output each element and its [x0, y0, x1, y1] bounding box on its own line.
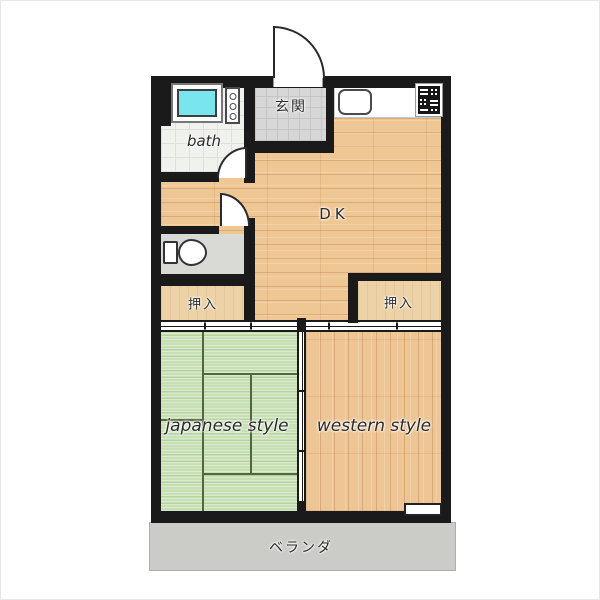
wall-bath-bottom — [161, 172, 219, 182]
bath-label: bath — [187, 132, 221, 150]
tatami-mat-line — [202, 473, 298, 475]
track-tick — [204, 323, 206, 330]
wall-right — [441, 76, 451, 523]
fusuma-track — [306, 320, 441, 332]
wall-closet-right-top — [348, 273, 441, 281]
wall-genkan-bottom — [249, 141, 334, 153]
veranda-label: ベランダ — [269, 537, 333, 557]
bathtub — [171, 83, 223, 123]
wall-pier-bottom — [297, 501, 306, 513]
door-threshold — [273, 77, 323, 87]
floor-plan: 玄関 bath DK 押入 押入 japanese style western … — [0, 0, 600, 600]
wall-genkan-right — [326, 88, 334, 143]
wall-closet-left-side — [244, 286, 255, 321]
track-tick — [298, 390, 305, 392]
partition-track — [297, 332, 306, 501]
track-line — [306, 326, 441, 327]
dk-label: DK — [319, 205, 348, 223]
track-tick — [298, 450, 305, 452]
closet-left-label: 押入 — [188, 294, 218, 313]
track-tick — [328, 323, 330, 330]
panel-knob — [229, 103, 236, 110]
stove-icon — [415, 83, 443, 117]
toilet-tank — [163, 241, 178, 264]
track-line — [159, 326, 297, 327]
western-room-label: western style — [317, 416, 431, 436]
genkan-label: 玄関 — [275, 96, 307, 116]
japanese-room-label: japanese style — [165, 416, 288, 436]
track-line — [302, 332, 303, 501]
stove-burners — [418, 86, 440, 114]
track-tick — [250, 323, 252, 330]
bath-control-panel — [225, 87, 240, 124]
wall-left — [151, 76, 161, 523]
wall-pier-top — [297, 318, 306, 332]
panel-knob — [229, 113, 236, 120]
panel-knob — [229, 93, 236, 100]
track-tick — [396, 323, 398, 330]
fusuma-track — [159, 320, 297, 332]
wall-bath-niche — [151, 76, 171, 126]
closet-right-label: 押入 — [384, 293, 414, 312]
wall-closet-right-side — [348, 273, 358, 323]
bathtub-water — [177, 89, 217, 117]
entrance-door-arc — [273, 26, 325, 78]
wall-toilet-top — [161, 226, 219, 234]
kitchen-sink — [338, 89, 372, 115]
wall-fixture-box — [404, 503, 442, 516]
wall-toilet-bottom — [151, 274, 255, 286]
